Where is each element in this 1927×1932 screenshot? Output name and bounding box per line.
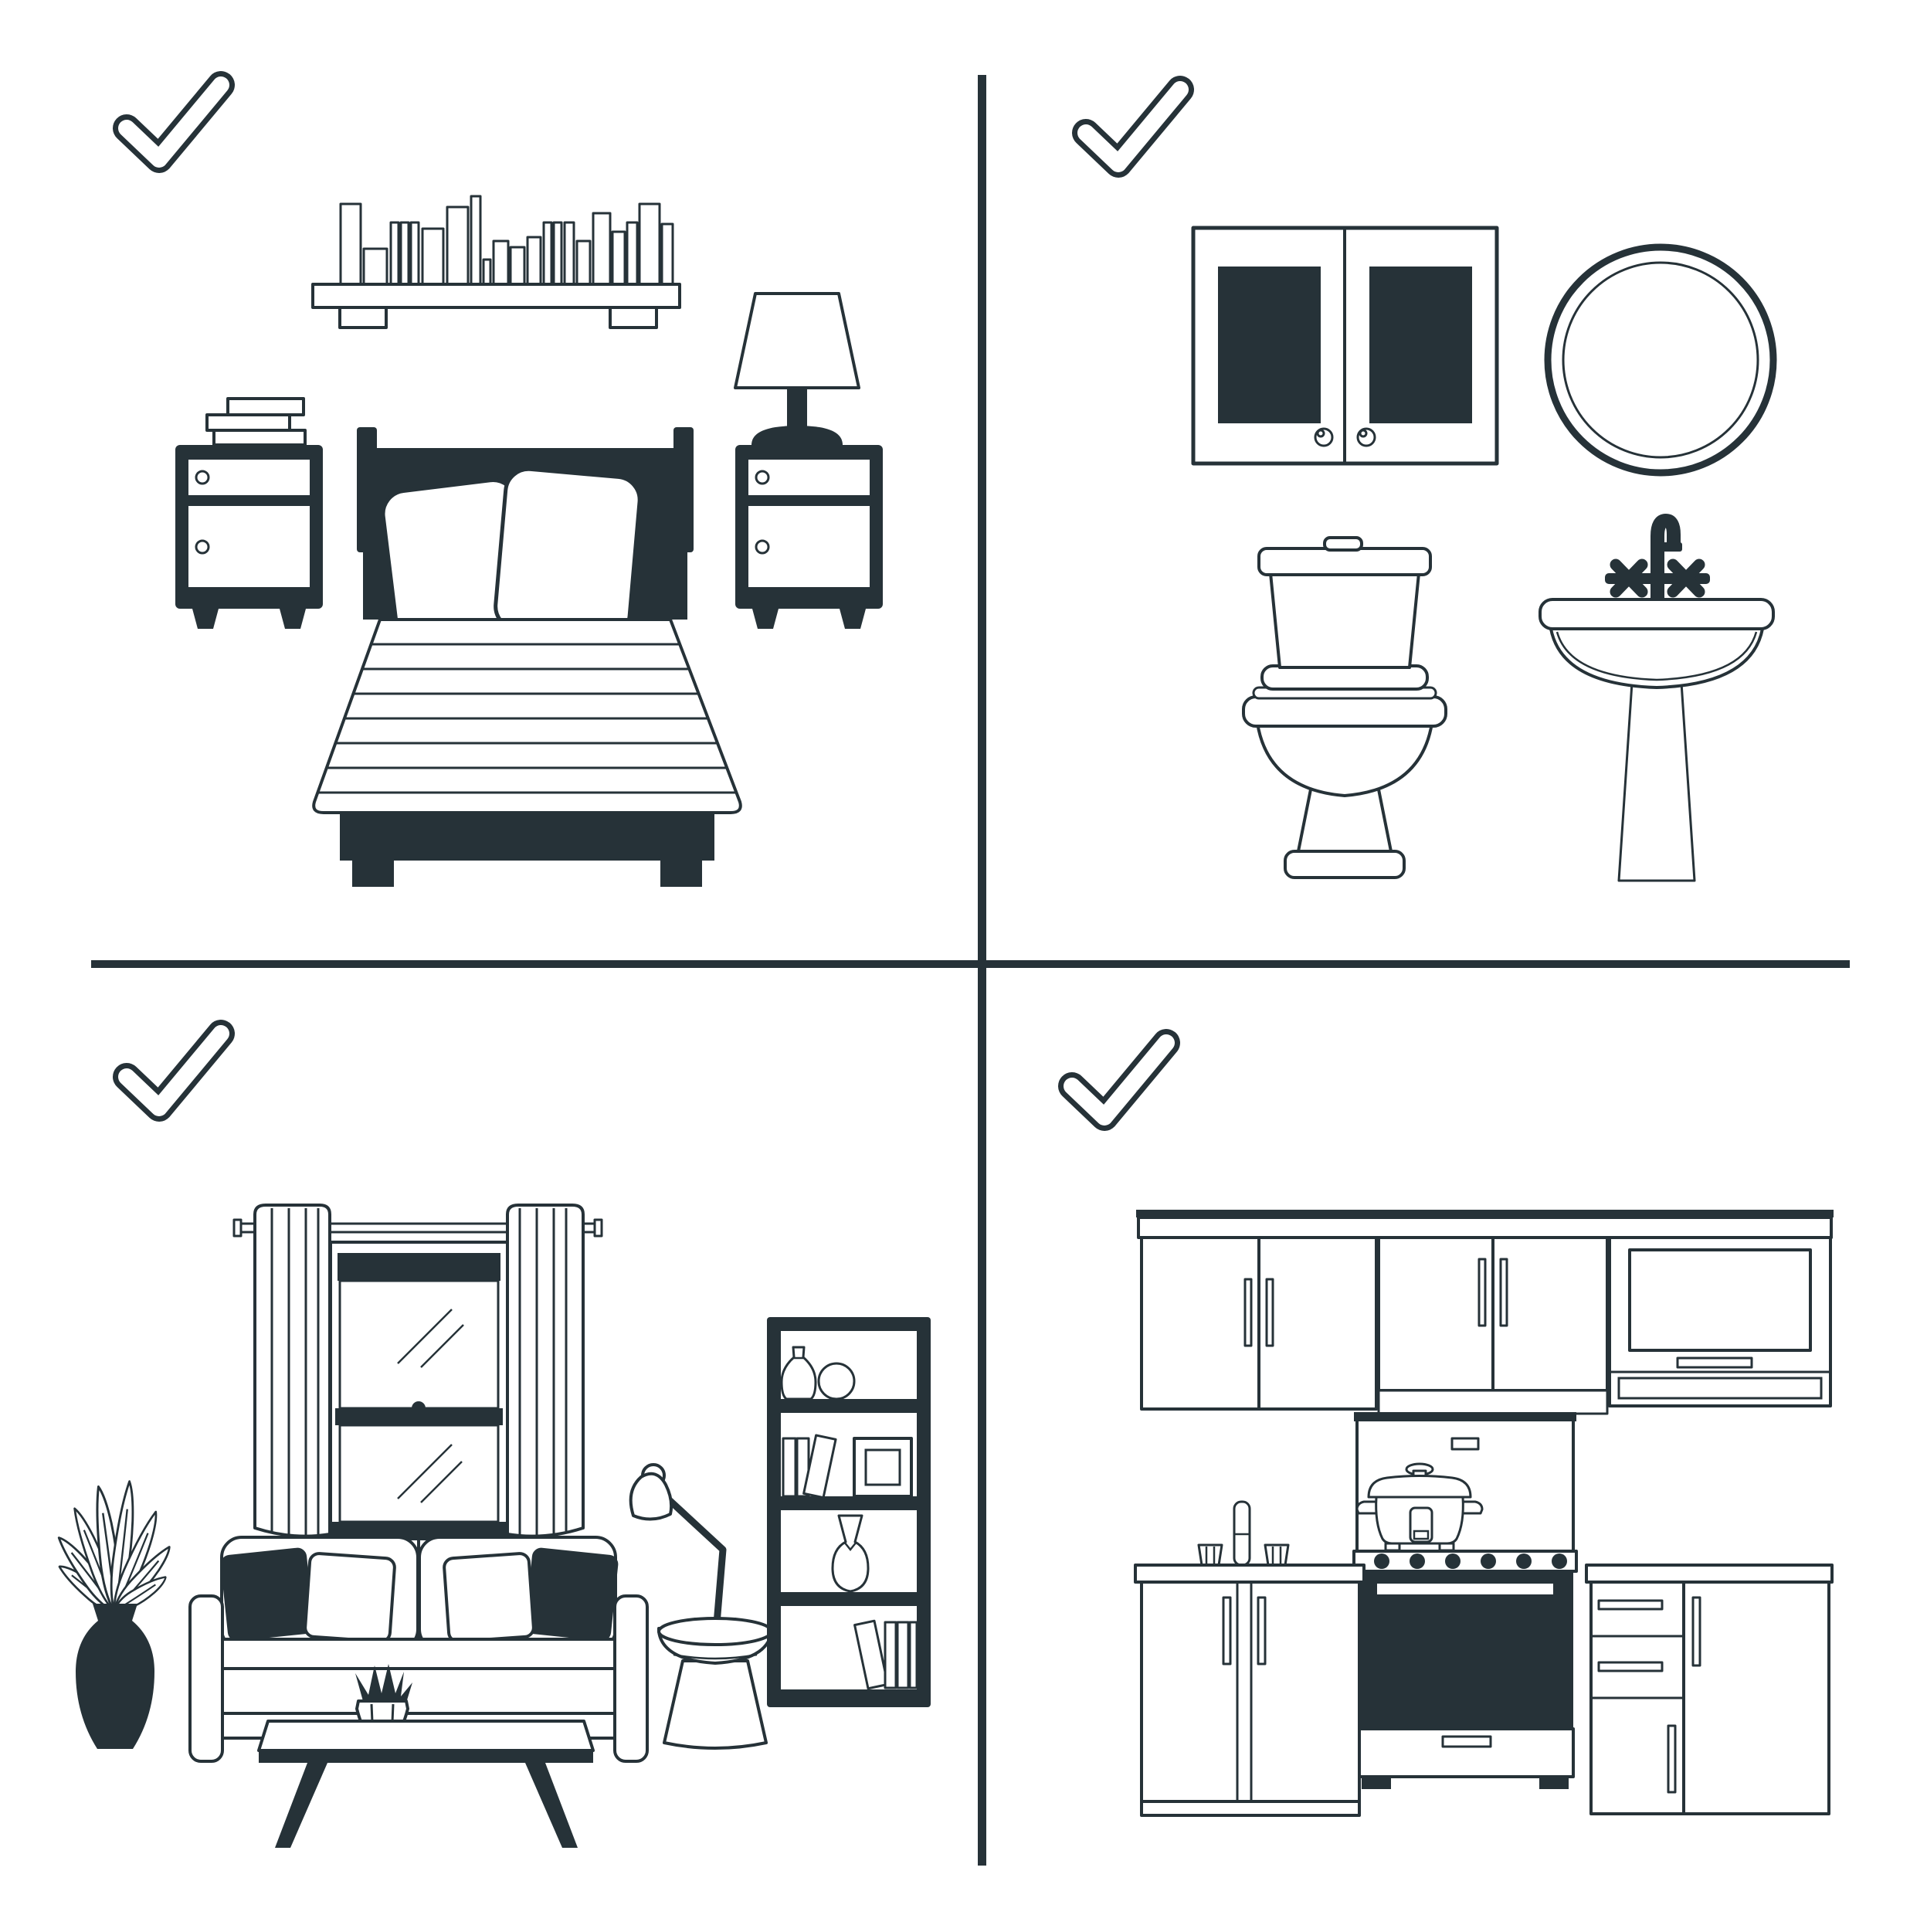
living-room-quadrant [53, 1205, 931, 1848]
check-icon-bedroom [127, 85, 221, 159]
lamp-base [751, 426, 843, 445]
curtained-window-icon [234, 1205, 602, 1539]
side-table-top [659, 1618, 772, 1645]
stacked-book [228, 399, 304, 415]
horizontal-divider-line [91, 960, 1850, 968]
flush-button [1325, 538, 1362, 550]
lamp-head [631, 1474, 671, 1519]
drawer-handle [1443, 1737, 1491, 1747]
tap-handle [1199, 1545, 1222, 1565]
countertop [1586, 1565, 1832, 1582]
sofa-seat [222, 1639, 616, 1669]
coffee-table-leg [525, 1763, 578, 1848]
cooker-foot [1440, 1543, 1454, 1550]
picture-frame [854, 1438, 911, 1496]
cabinet-cornice [1138, 1217, 1831, 1238]
shelf-unit-icon [767, 1317, 931, 1707]
check-icon-bathroom [1086, 90, 1180, 164]
check-icon-kitchen [1072, 1043, 1166, 1117]
mattress [314, 620, 741, 813]
toilet-tank-lid [1259, 548, 1430, 575]
window-mid-bar [335, 1408, 503, 1425]
microwave-handle [1678, 1358, 1752, 1367]
shelf-book [783, 1438, 796, 1496]
sofa-pillow-light [443, 1553, 534, 1642]
cooker-handle [1461, 1502, 1482, 1513]
shelf-book [897, 1622, 908, 1688]
kitchen-faucet-icon [1199, 1502, 1288, 1565]
oven-handle [1377, 1584, 1553, 1594]
coffee-table-top [259, 1721, 593, 1750]
bathroom-quadrant [1193, 228, 1773, 881]
shelf-bracket [340, 307, 386, 328]
cabinet-handle [1267, 1279, 1273, 1346]
oven-door [1357, 1571, 1573, 1729]
sofa-pillow-light [304, 1553, 395, 1642]
door-knob [196, 541, 209, 553]
bed-icon [293, 427, 757, 887]
check-icon-living-room [127, 1034, 221, 1108]
toilet-base [1285, 851, 1404, 878]
side-table-icon [659, 1618, 772, 1748]
cooker-handle [1357, 1502, 1378, 1513]
cabinet-door-panel [1369, 267, 1472, 423]
pedestal-sink-icon [1540, 521, 1773, 881]
toilet-rim [1243, 697, 1446, 726]
shelf-board [313, 284, 680, 307]
toilet-bowl [1257, 723, 1432, 796]
stacked-book [214, 430, 305, 445]
cabinet-handle [1501, 1259, 1507, 1326]
toilet-tank [1271, 573, 1419, 667]
drawer-handle [1599, 1601, 1662, 1609]
sofa-front [222, 1669, 616, 1713]
stacked-book [207, 415, 290, 430]
countertop [1135, 1565, 1364, 1582]
door-knob [756, 541, 768, 553]
sink-pedestal [1619, 683, 1695, 881]
cabinet-door-panel [1218, 267, 1321, 423]
side-table-base [664, 1661, 766, 1748]
shelf-book [910, 1622, 917, 1688]
bed-foot [352, 861, 394, 887]
bed-foot [660, 861, 702, 887]
window-frame [331, 1242, 507, 1539]
house-rooms-illustration [0, 0, 1927, 1932]
sofa-arm [615, 1596, 647, 1761]
potted-plant-icon [53, 1481, 175, 1749]
drawer-knob [756, 471, 768, 484]
lamp-shade [735, 294, 859, 388]
faucet-icon [1605, 521, 1710, 610]
table-lamp-icon [735, 294, 859, 445]
cabinet-handle [1245, 1279, 1251, 1346]
pillow [494, 467, 641, 639]
sink-top [1540, 599, 1773, 629]
stove-vent [1452, 1438, 1478, 1449]
cooker-foot [1386, 1543, 1399, 1550]
vertical-divider-line [978, 75, 986, 1866]
microwave-window [1630, 1250, 1810, 1350]
sofa-pillow-dark [219, 1547, 314, 1642]
drawer-unit-icon [1586, 1565, 1832, 1814]
sofa-arm [190, 1596, 222, 1761]
door-handle [1693, 1598, 1700, 1665]
drawer-handle [1599, 1662, 1662, 1671]
sofa-pillow-dark [524, 1547, 619, 1642]
cooker-lid [1369, 1476, 1471, 1498]
toilet-icon [1243, 538, 1446, 878]
toilet-seat-lid [1262, 666, 1427, 689]
window-sill [332, 1522, 506, 1537]
stove-icon [1354, 1412, 1576, 1789]
tap-handle [1265, 1545, 1288, 1565]
cabinet-handle [1223, 1598, 1230, 1664]
stove-foot [1362, 1777, 1391, 1789]
shelf-bracket [610, 307, 656, 328]
nightstand-right [735, 445, 883, 629]
sink-cabinet-icon [1135, 1502, 1364, 1815]
coffee-table-leg [275, 1763, 327, 1848]
sink-bowl [1551, 629, 1762, 688]
cabinet-plinth [1142, 1801, 1359, 1815]
kitchen-quadrant [1135, 1210, 1834, 1815]
wall-shelf-icon [313, 196, 680, 328]
cabinet-handle [1479, 1259, 1485, 1326]
microwave-unit-icon [1610, 1238, 1830, 1406]
plant-vase [76, 1604, 154, 1749]
wall-cabinet-icon [1193, 228, 1497, 463]
round-mirror-icon [1548, 247, 1773, 473]
door-handle [1668, 1726, 1675, 1792]
decor-sphere [819, 1363, 854, 1399]
upper-cabinets-icon [1136, 1210, 1834, 1414]
cabinet-handle [1258, 1598, 1265, 1664]
shelf-book [885, 1622, 896, 1688]
drawer-knob [196, 471, 209, 484]
bed-base [340, 813, 714, 861]
nightstand-left [175, 399, 323, 629]
window-top-bar [338, 1253, 500, 1281]
stove-foot [1539, 1777, 1569, 1789]
bedroom-quadrant [175, 196, 883, 887]
